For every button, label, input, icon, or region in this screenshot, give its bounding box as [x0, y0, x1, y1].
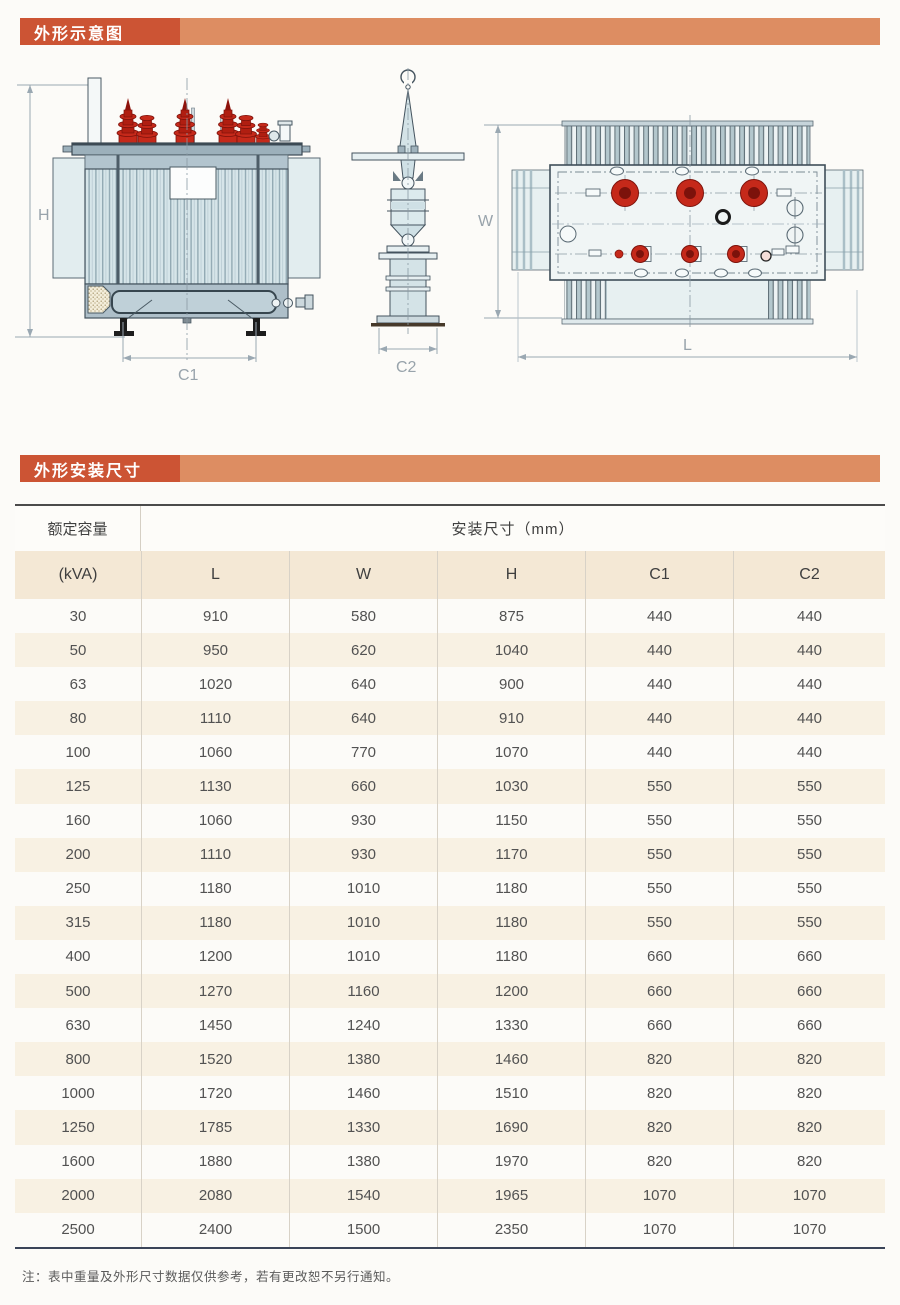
table-row: 100 1060 770 1070 440 440 — [15, 735, 885, 769]
cell-c2: 550 — [733, 804, 885, 838]
table-header-columns-row: (kVA) L W H C1 C2 — [15, 551, 885, 599]
table-row: 125 1130 660 1030 550 550 — [15, 769, 885, 803]
cell-c1: 440 — [585, 735, 733, 769]
cell-l: 1110 — [141, 701, 289, 735]
cell-c1: 440 — [585, 633, 733, 667]
table-row: 63 1020 640 900 440 440 — [15, 667, 885, 701]
cell-c1: 1070 — [585, 1179, 733, 1213]
table-row: 200 1110 930 1170 550 550 — [15, 838, 885, 872]
cell-c1: 820 — [585, 1042, 733, 1076]
cell-h: 1200 — [437, 974, 585, 1008]
cell-h: 1180 — [437, 940, 585, 974]
cell-kva: 125 — [15, 769, 141, 803]
table-row: 500 1270 1160 1200 660 660 — [15, 974, 885, 1008]
cell-w: 1010 — [289, 940, 437, 974]
cell-kva: 50 — [15, 633, 141, 667]
cell-h: 910 — [437, 701, 585, 735]
cell-c2: 440 — [733, 599, 885, 633]
cell-l: 1060 — [141, 804, 289, 838]
cell-c1: 660 — [585, 1008, 733, 1042]
header-install-dimensions: 安装尺寸（mm） — [141, 506, 885, 551]
header-col-h: H — [437, 551, 585, 599]
cell-w: 1460 — [289, 1076, 437, 1110]
cell-l: 1110 — [141, 838, 289, 872]
cell-c2: 550 — [733, 769, 885, 803]
cell-w: 1010 — [289, 872, 437, 906]
cell-h: 1330 — [437, 1008, 585, 1042]
cell-l: 1180 — [141, 872, 289, 906]
cell-h: 1030 — [437, 769, 585, 803]
cell-h: 1965 — [437, 1179, 585, 1213]
table-body: 30 910 580 875 440 440 50 950 620 1040 4… — [15, 599, 885, 1247]
cell-c2: 440 — [733, 667, 885, 701]
catalog-page: 外形示意图 — [0, 0, 900, 1305]
cell-c2: 820 — [733, 1110, 885, 1144]
cell-l: 1180 — [141, 906, 289, 940]
cell-h: 1040 — [437, 633, 585, 667]
dim-label-c1: C1 — [178, 367, 199, 384]
cell-kva: 315 — [15, 906, 141, 940]
table-row: 50 950 620 1040 440 440 — [15, 633, 885, 667]
cell-w: 1500 — [289, 1213, 437, 1247]
table-row: 1600 1880 1380 1970 820 820 — [15, 1145, 885, 1179]
cell-w: 640 — [289, 701, 437, 735]
cell-h: 1180 — [437, 906, 585, 940]
cell-c1: 550 — [585, 804, 733, 838]
header-col-w: W — [289, 551, 437, 599]
cell-c2: 440 — [733, 735, 885, 769]
cell-w: 770 — [289, 735, 437, 769]
cell-kva: 80 — [15, 701, 141, 735]
cell-l: 2080 — [141, 1179, 289, 1213]
cell-w: 1380 — [289, 1042, 437, 1076]
cell-h: 1170 — [437, 838, 585, 872]
cell-c2: 440 — [733, 701, 885, 735]
cell-h: 2350 — [437, 1213, 585, 1247]
cell-c1: 820 — [585, 1076, 733, 1110]
cell-w: 620 — [289, 633, 437, 667]
cell-kva: 200 — [15, 838, 141, 872]
table-row: 1000 1720 1460 1510 820 820 — [15, 1076, 885, 1110]
cell-h: 1510 — [437, 1076, 585, 1110]
cell-c1: 820 — [585, 1110, 733, 1144]
header-unit-kva: (kVA) — [15, 551, 141, 599]
cell-kva: 100 — [15, 735, 141, 769]
cell-c1: 440 — [585, 599, 733, 633]
cell-kva: 400 — [15, 940, 141, 974]
section-header-schematic: 外形示意图 — [20, 18, 880, 45]
cell-l: 1520 — [141, 1042, 289, 1076]
cell-c2: 550 — [733, 906, 885, 940]
cell-c2: 660 — [733, 940, 885, 974]
table-row: 2500 2400 1500 2350 1070 1070 — [15, 1213, 885, 1247]
table-row: 400 1200 1010 1180 660 660 — [15, 940, 885, 974]
cell-c2: 660 — [733, 974, 885, 1008]
cell-l: 1200 — [141, 940, 289, 974]
table-row: 30 910 580 875 440 440 — [15, 599, 885, 633]
cell-kva: 630 — [15, 1008, 141, 1042]
cell-c2: 550 — [733, 872, 885, 906]
cell-l: 1880 — [141, 1145, 289, 1179]
cell-h: 1460 — [437, 1042, 585, 1076]
section-bar-fill — [180, 18, 880, 45]
cell-l: 1060 — [141, 735, 289, 769]
cell-kva: 500 — [15, 974, 141, 1008]
dimensions-table: 额定容量 安装尺寸（mm） (kVA) L W H C1 C2 30 910 5… — [15, 504, 885, 1249]
footnote: 注：表中重量及外形尺寸数据仅供参考，若有更改恕不另行通知。 — [22, 1266, 399, 1285]
cell-c2: 660 — [733, 1008, 885, 1042]
cell-kva: 2000 — [15, 1179, 141, 1213]
dim-label-w: W — [478, 213, 494, 230]
cell-h: 1070 — [437, 735, 585, 769]
dim-label-h: H — [38, 207, 50, 224]
top-view: W — [478, 115, 863, 362]
cell-c2: 1070 — [733, 1213, 885, 1247]
cell-w: 1160 — [289, 974, 437, 1008]
cell-c2: 550 — [733, 838, 885, 872]
cell-c1: 660 — [585, 974, 733, 1008]
cell-h: 1180 — [437, 872, 585, 906]
cell-c2: 1070 — [733, 1179, 885, 1213]
cell-c2: 820 — [733, 1145, 885, 1179]
cell-kva: 1250 — [15, 1110, 141, 1144]
cell-w: 660 — [289, 769, 437, 803]
table-row: 80 1110 640 910 440 440 — [15, 701, 885, 735]
cell-c1: 550 — [585, 872, 733, 906]
section-title-dimensions: 外形安装尺寸 — [20, 455, 180, 482]
table-row: 160 1060 930 1150 550 550 — [15, 804, 885, 838]
table-row: 630 1450 1240 1330 660 660 — [15, 1008, 885, 1042]
cell-l: 1785 — [141, 1110, 289, 1144]
cell-l: 1130 — [141, 769, 289, 803]
cell-kva: 2500 — [15, 1213, 141, 1247]
cell-c1: 440 — [585, 701, 733, 735]
cell-l: 1450 — [141, 1008, 289, 1042]
cell-c1: 440 — [585, 667, 733, 701]
cell-w: 640 — [289, 667, 437, 701]
section-bar-fill — [180, 455, 880, 482]
cell-c1: 550 — [585, 769, 733, 803]
cell-h: 900 — [437, 667, 585, 701]
cell-w: 930 — [289, 804, 437, 838]
cell-kva: 30 — [15, 599, 141, 633]
cell-w: 1540 — [289, 1179, 437, 1213]
cell-c2: 820 — [733, 1076, 885, 1110]
cell-h: 1150 — [437, 804, 585, 838]
cell-l: 1270 — [141, 974, 289, 1008]
cell-l: 2400 — [141, 1213, 289, 1247]
section-header-dimensions: 外形安装尺寸 — [20, 455, 880, 482]
table-row: 315 1180 1010 1180 550 550 — [15, 906, 885, 940]
header-col-l: L — [141, 551, 289, 599]
cell-w: 1380 — [289, 1145, 437, 1179]
schematic-drawing: H — [0, 60, 900, 420]
cell-kva: 63 — [15, 667, 141, 701]
cell-c1: 550 — [585, 838, 733, 872]
cell-l: 1720 — [141, 1076, 289, 1110]
table-row: 2000 2080 1540 1965 1070 1070 — [15, 1179, 885, 1213]
table-row: 1250 1785 1330 1690 820 820 — [15, 1110, 885, 1144]
cell-kva: 250 — [15, 872, 141, 906]
table-row: 800 1520 1380 1460 820 820 — [15, 1042, 885, 1076]
cell-w: 930 — [289, 838, 437, 872]
cell-l: 1020 — [141, 667, 289, 701]
cell-kva: 1600 — [15, 1145, 141, 1179]
cell-w: 1010 — [289, 906, 437, 940]
cell-h: 1970 — [437, 1145, 585, 1179]
cell-h: 875 — [437, 599, 585, 633]
side-view: C2 — [352, 68, 464, 376]
cell-w: 580 — [289, 599, 437, 633]
cell-c1: 820 — [585, 1145, 733, 1179]
section-title-schematic: 外形示意图 — [20, 18, 180, 45]
dim-label-l: L — [683, 337, 692, 354]
cell-l: 950 — [141, 633, 289, 667]
dim-label-c2: C2 — [396, 359, 417, 376]
cell-kva: 800 — [15, 1042, 141, 1076]
header-col-c2: C2 — [733, 551, 885, 599]
cell-c1: 660 — [585, 940, 733, 974]
cell-c2: 820 — [733, 1042, 885, 1076]
table-header-group-row: 额定容量 安装尺寸（mm） — [15, 506, 885, 551]
cell-w: 1240 — [289, 1008, 437, 1042]
header-col-c1: C1 — [585, 551, 733, 599]
table-row: 250 1180 1010 1180 550 550 — [15, 872, 885, 906]
header-rated-capacity: 额定容量 — [15, 506, 141, 551]
cell-c1: 1070 — [585, 1213, 733, 1247]
cell-h: 1690 — [437, 1110, 585, 1144]
cell-l: 910 — [141, 599, 289, 633]
cell-kva: 1000 — [15, 1076, 141, 1110]
front-view: H — [15, 78, 320, 384]
cell-w: 1330 — [289, 1110, 437, 1144]
cell-c1: 550 — [585, 906, 733, 940]
cell-c2: 440 — [733, 633, 885, 667]
cell-kva: 160 — [15, 804, 141, 838]
